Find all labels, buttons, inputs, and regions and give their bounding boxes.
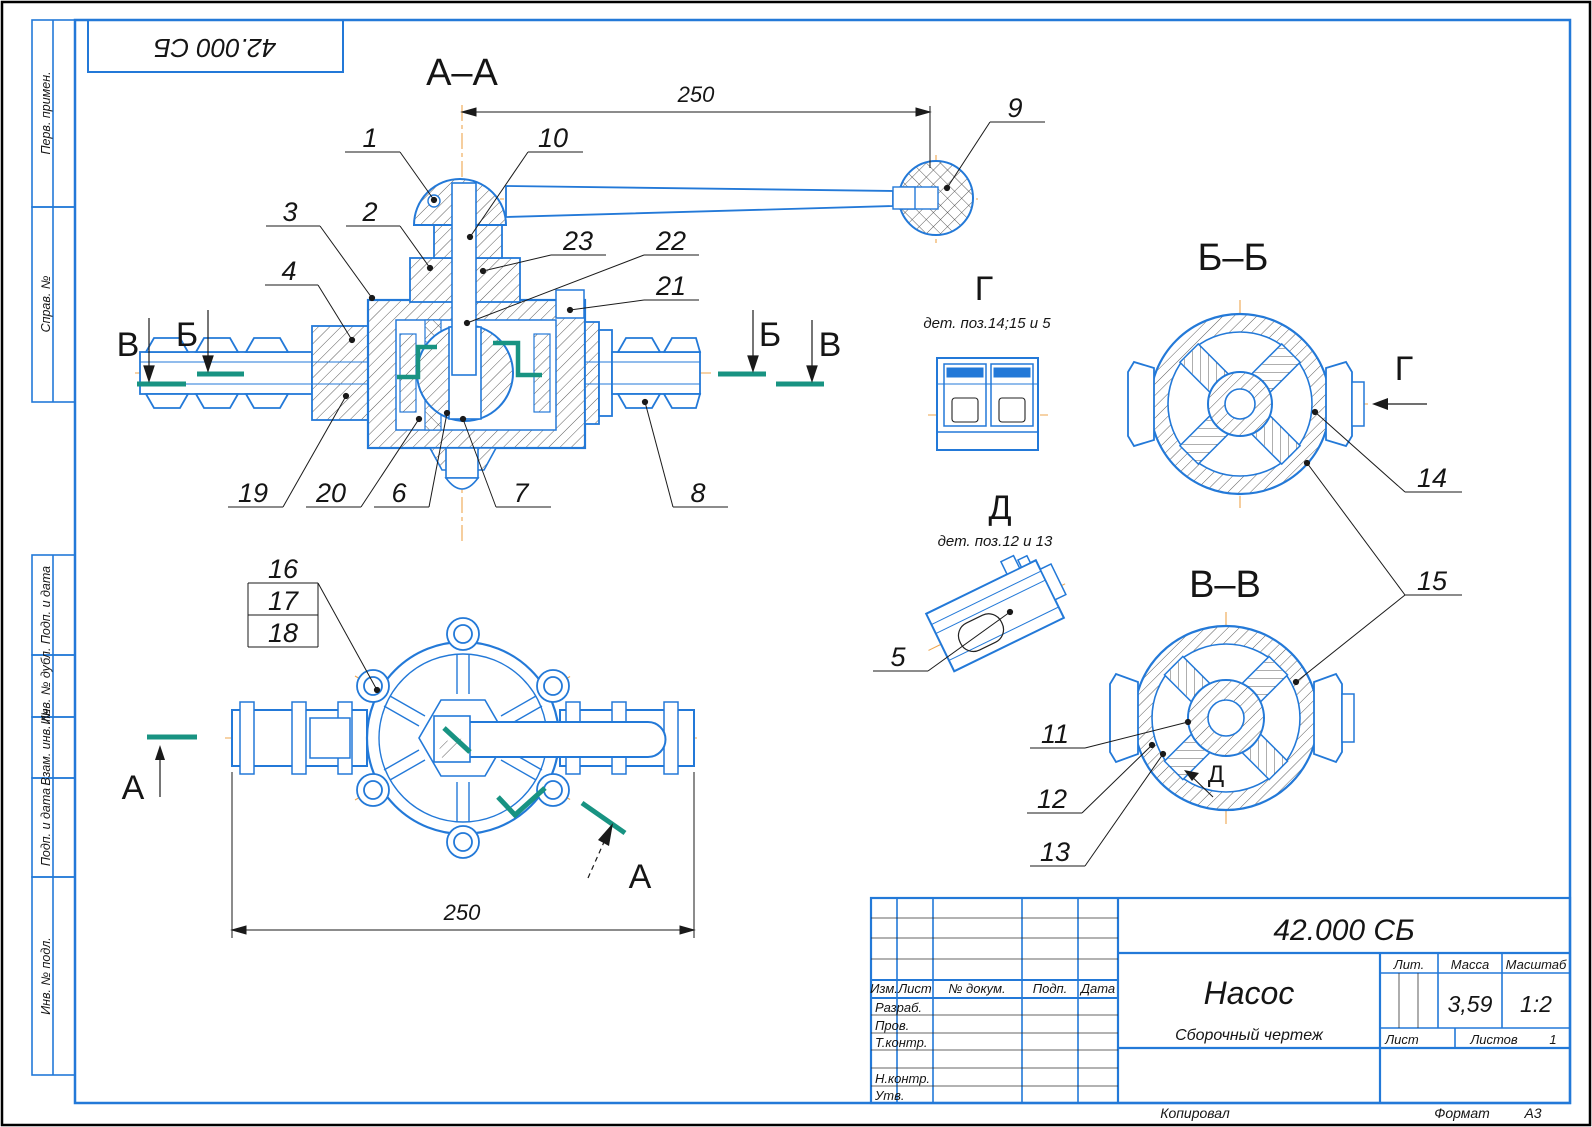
section-vv-title: В–В (1189, 564, 1261, 606)
sheet-frame: 42.000 СБ Перв. примен. Справ. № Подп. и… (2, 2, 1590, 1125)
drawing-sheet: 42.000 СБ Перв. примен. Справ. № Подп. и… (0, 0, 1592, 1127)
footer-format-value: А3 (1523, 1105, 1541, 1121)
tb-row-nkontr: Н.контр. (875, 1071, 930, 1086)
detail-d-title: Д (988, 489, 1011, 527)
detail-g-geometry (937, 358, 1038, 450)
tb-row-prov: Пров. (875, 1018, 909, 1033)
callout-21-label: 21 (655, 271, 686, 301)
side-label-inv-podl: Инв. № подл. (39, 937, 53, 1015)
aa-left-port (140, 326, 370, 420)
callout-1-label: 1 (362, 123, 377, 153)
callout-16-label: 16 (268, 554, 299, 584)
callout-20-label: 20 (315, 478, 346, 508)
callout-22-label: 22 (655, 226, 686, 256)
side-label-podp-data-1: Подп. и дата (39, 566, 53, 644)
vv-detail-d-label: Д (1208, 761, 1224, 788)
tb-header-data: Дата (1079, 981, 1115, 996)
detail-d-note: дет. поз.12 и 13 (938, 533, 1053, 550)
tb-value-listov: 1 (1549, 1032, 1556, 1047)
aa-dim-250-label: 250 (677, 82, 715, 107)
tb-doc-type: Сборочный чертеж (1175, 1027, 1324, 1044)
section-letter-v-left: В (117, 326, 140, 364)
callout-3-label: 3 (282, 197, 297, 227)
tb-header-list2: Лист (1384, 1032, 1419, 1047)
tb-header-list: Лист (897, 981, 932, 996)
side-label-perv-primen: Перв. примен. (39, 71, 53, 154)
view-letter-a-bottom: А (629, 858, 652, 896)
callout-5-label: 5 (890, 642, 906, 672)
section-letter-v-right: В (819, 326, 842, 364)
aa-right-port (585, 322, 700, 424)
view-letter-a-left: А (122, 769, 145, 807)
callout-19-label: 19 (238, 478, 268, 508)
tb-row-tkontr: Т.контр. (875, 1035, 927, 1050)
tb-header-doc: № докум. (948, 981, 1005, 996)
tb-part-name: Насос (1204, 975, 1295, 1011)
bottom-left-pipe (232, 702, 367, 774)
tb-header-listov: Листов (1469, 1032, 1518, 1047)
view-letter-g: Г (1395, 350, 1413, 388)
section-letter-b-left: Б (176, 316, 198, 354)
stamp-doc-number: 42.000 СБ (154, 33, 277, 63)
tb-row-razrab: Разраб. (875, 1000, 922, 1015)
callout-10-label: 10 (538, 123, 568, 153)
callout-13-label: 13 (1040, 837, 1070, 867)
tb-header-massa: Масса (1451, 957, 1489, 972)
callout-11-label: 11 (1041, 719, 1069, 749)
side-label-vzam-inv: Взам. инв. № (39, 708, 53, 786)
footer-format-label: Формат (1434, 1105, 1490, 1121)
callout-14-label: 14 (1417, 463, 1447, 493)
bottom-handle (434, 716, 666, 762)
bottom-dim-250-label: 250 (443, 900, 481, 925)
callout-9-label: 9 (1007, 93, 1022, 123)
callout-8-label: 8 (690, 478, 705, 508)
tb-row-utv: Утв. (874, 1088, 905, 1103)
tb-doc-number: 42.000 СБ (1273, 914, 1414, 947)
callout-2-label: 2 (361, 197, 377, 227)
callout-4-label: 4 (281, 256, 296, 286)
detail-g-title: Г (975, 270, 993, 308)
tb-header-masshtab: Масштаб (1506, 957, 1567, 972)
callout-7-label: 7 (513, 478, 529, 508)
side-label-podp-data-2: Подп. и дата (39, 788, 53, 866)
detail-g-note: дет. поз.14;15 и 5 (923, 315, 1051, 332)
callout-6-label: 6 (391, 478, 407, 508)
callout-18-label: 18 (268, 618, 298, 648)
callout-23-label: 23 (562, 226, 593, 256)
tb-header-lit: Лит. (1393, 957, 1424, 972)
tb-header-podp: Подп. (1033, 981, 1068, 996)
callout-12-label: 12 (1037, 784, 1067, 814)
footer-kopiroval: Копировал (1160, 1105, 1230, 1121)
section-bb-title: Б–Б (1197, 237, 1268, 279)
side-label-sprav-no: Справ. № (39, 275, 53, 332)
callout-15-label: 15 (1417, 566, 1448, 596)
section-aa-title: А–А (426, 52, 498, 94)
engineering-drawing: 42.000 СБ Перв. примен. Справ. № Подп. и… (0, 0, 1592, 1127)
tb-header-izm: Изм. (870, 981, 898, 996)
tb-value-masshtab: 1:2 (1520, 991, 1552, 1017)
tb-value-massa: 3,59 (1448, 991, 1493, 1017)
callout-17-label: 17 (268, 586, 299, 616)
section-letter-b-right: Б (759, 316, 781, 354)
